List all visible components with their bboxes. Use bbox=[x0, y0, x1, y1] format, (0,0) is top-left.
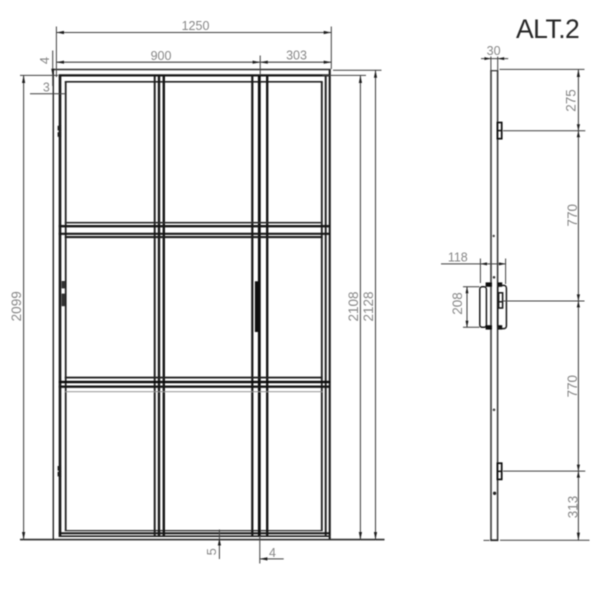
svg-text:303: 303 bbox=[286, 49, 307, 63]
svg-text:2128: 2128 bbox=[361, 291, 376, 321]
svg-text:4: 4 bbox=[269, 546, 276, 560]
svg-text:313: 313 bbox=[565, 496, 580, 519]
svg-text:118: 118 bbox=[448, 251, 468, 265]
svg-text:2099: 2099 bbox=[9, 291, 24, 321]
svg-text:5: 5 bbox=[204, 548, 219, 555]
svg-text:208: 208 bbox=[450, 292, 465, 315]
svg-text:30: 30 bbox=[487, 44, 501, 58]
svg-text:ALT.2: ALT.2 bbox=[516, 14, 579, 44]
svg-text:900: 900 bbox=[151, 49, 172, 63]
svg-text:275: 275 bbox=[564, 89, 579, 112]
svg-text:770: 770 bbox=[565, 204, 580, 227]
svg-text:770: 770 bbox=[565, 375, 580, 398]
svg-text:1250: 1250 bbox=[182, 19, 210, 33]
svg-text:4: 4 bbox=[37, 57, 52, 64]
svg-text:3: 3 bbox=[43, 81, 50, 95]
svg-text:2108: 2108 bbox=[346, 291, 361, 321]
